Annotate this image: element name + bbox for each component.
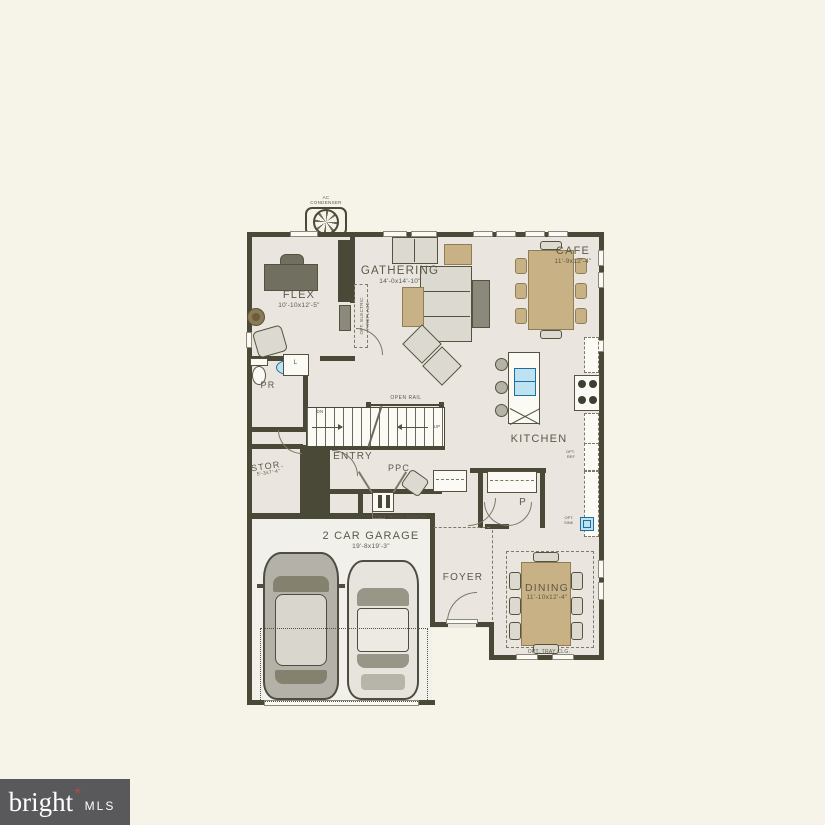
window (598, 250, 604, 266)
media-console (392, 237, 438, 264)
stair-dn-label: DN (316, 409, 323, 414)
cafe-chair (515, 258, 527, 274)
dining-dims: 11'-10x12'-4" (525, 594, 569, 601)
linen-label: L (294, 359, 299, 366)
gathering-name: GATHERING (361, 265, 439, 278)
wall (320, 356, 355, 361)
dining-chair (509, 572, 521, 590)
desk (264, 264, 318, 291)
rail-post (439, 402, 444, 407)
island-stool (495, 404, 508, 417)
window (598, 560, 604, 578)
open-rail-line (368, 404, 444, 406)
dining-chair (509, 622, 521, 640)
front-door-leaf (446, 619, 478, 624)
wall (489, 655, 604, 660)
stair-down-arrow (312, 427, 342, 428)
burner (578, 396, 586, 404)
window (496, 231, 516, 237)
opt-ref-line2: REF (566, 455, 575, 460)
wall (430, 516, 435, 627)
cafe-end-chair (540, 330, 562, 339)
flex-room-label: FLEX 10'-10x12'-5" (278, 289, 320, 309)
dining-label: DINING 11'-10x12'-4" (525, 582, 569, 602)
pantry-shelf-line (490, 480, 534, 481)
window (290, 231, 318, 237)
opt-sink-icon-inner (583, 520, 591, 528)
wall (540, 468, 545, 528)
bench-post (386, 495, 390, 508)
mud-cubby (433, 470, 467, 492)
boot-bench-leader (372, 512, 385, 519)
dining-name: DINING (525, 582, 569, 594)
open-rail-label: OPEN RAIL (390, 396, 421, 402)
wall (358, 489, 363, 515)
coffee-table (402, 287, 424, 327)
bright-logo-text: bright (9, 789, 74, 816)
dining-chair (571, 572, 583, 590)
cafe-dims: 11'-9x12'-4" (554, 258, 591, 265)
bench-post (378, 495, 382, 508)
dining-chair (571, 597, 583, 615)
opening-dashed (434, 527, 490, 528)
opt-tray-ceiling-label: OPT. TRAY CLG. (528, 650, 571, 656)
opt-fireplace-line2: FIREPLACE (365, 302, 370, 330)
media-console-divider (414, 239, 415, 262)
opt-sink-label: OPT. SINK (564, 516, 573, 526)
burner (578, 380, 586, 388)
car-mirror (338, 584, 345, 588)
island-sink-divider (515, 381, 535, 382)
ottoman (444, 244, 472, 265)
flex-dims: 10'-10x12'-5" (278, 302, 320, 309)
stair-up-arrow (398, 427, 428, 428)
mls-logo-text: MLS (85, 799, 116, 813)
rail-post (366, 402, 371, 407)
burner (589, 380, 597, 388)
window (246, 332, 252, 348)
cafe-chair (515, 283, 527, 299)
window (525, 231, 545, 237)
screenshot-root: { "colors": { "background": "#f6f3e8", "… (0, 0, 825, 825)
dining-chair (571, 622, 583, 640)
garage-door-track (260, 628, 428, 702)
entry-label: ENTRY (333, 451, 373, 463)
powder-room-label: PR (261, 380, 276, 390)
opt-fireplace-label: OPT. ELECTRIC FIREPLACE (346, 284, 383, 348)
plant-icon-center (252, 313, 260, 321)
logo-star-icon: ✳ (74, 786, 82, 797)
ppc-label: PPC (388, 463, 410, 473)
car-windshield (273, 576, 329, 592)
toilet-tank (250, 358, 268, 366)
opt-ref-counter (584, 443, 599, 471)
range (574, 375, 600, 411)
bright-mls-watermark: bright ✳ MLS (0, 779, 130, 825)
chaise (472, 280, 490, 328)
pantry-shelf (487, 471, 537, 493)
cafe-chair (575, 308, 587, 324)
sofa-cushion-line (422, 316, 470, 317)
dining-chair (509, 597, 521, 615)
window (598, 272, 604, 288)
floor-plan: AC CONDENSER DN UP OPEN (0, 0, 825, 825)
gathering-room-label: GATHERING 14'-0x14'-10" (361, 265, 439, 286)
closet-block (300, 450, 330, 513)
island-stool (495, 381, 508, 394)
mud-cubby-shelf (436, 479, 464, 480)
cafe-chair (575, 283, 587, 299)
dining-table (521, 562, 571, 646)
island-stool (495, 358, 508, 371)
dining-end-chair (533, 552, 559, 562)
desk-chair (280, 254, 304, 265)
island-sink (514, 368, 536, 396)
burner (589, 396, 597, 404)
stair-up-label: UP (434, 424, 441, 429)
sofa-cushion-line (422, 291, 470, 292)
garage-label: 2 CAR GARAGE 19'-8x19'-3" (323, 530, 420, 550)
cafe-room-label: CAFE 11'-9x12'-4" (554, 245, 591, 265)
garage-name: 2 CAR GARAGE (323, 530, 420, 543)
ac-line2: CONDENSER (310, 200, 341, 205)
opt-ref-label: OPT. REF (566, 450, 575, 460)
foyer-label: FOYER (443, 572, 483, 584)
window (548, 231, 568, 237)
ac-condenser-label: AC CONDENSER (310, 195, 341, 205)
opt-sink-line2: SINK (564, 521, 573, 526)
kitchen-room-label: KITCHEN (511, 433, 568, 446)
window (473, 231, 493, 237)
pantry-label: P (519, 497, 527, 509)
car-mirror (257, 584, 264, 588)
garage-dims: 19'-8x19'-3" (323, 543, 420, 550)
opening-dashed (492, 530, 493, 620)
window (598, 582, 604, 600)
kitchen-counter (584, 337, 599, 373)
cafe-chair (515, 308, 527, 324)
cafe-name: CAFE (554, 245, 591, 258)
boot-bench (372, 492, 394, 512)
flex-name: FLEX (278, 289, 320, 302)
car-windshield (357, 588, 409, 606)
opt-fireplace-line1: OPT. ELECTRIC (359, 297, 364, 334)
gathering-dims: 14'-0x14'-10" (361, 278, 439, 285)
